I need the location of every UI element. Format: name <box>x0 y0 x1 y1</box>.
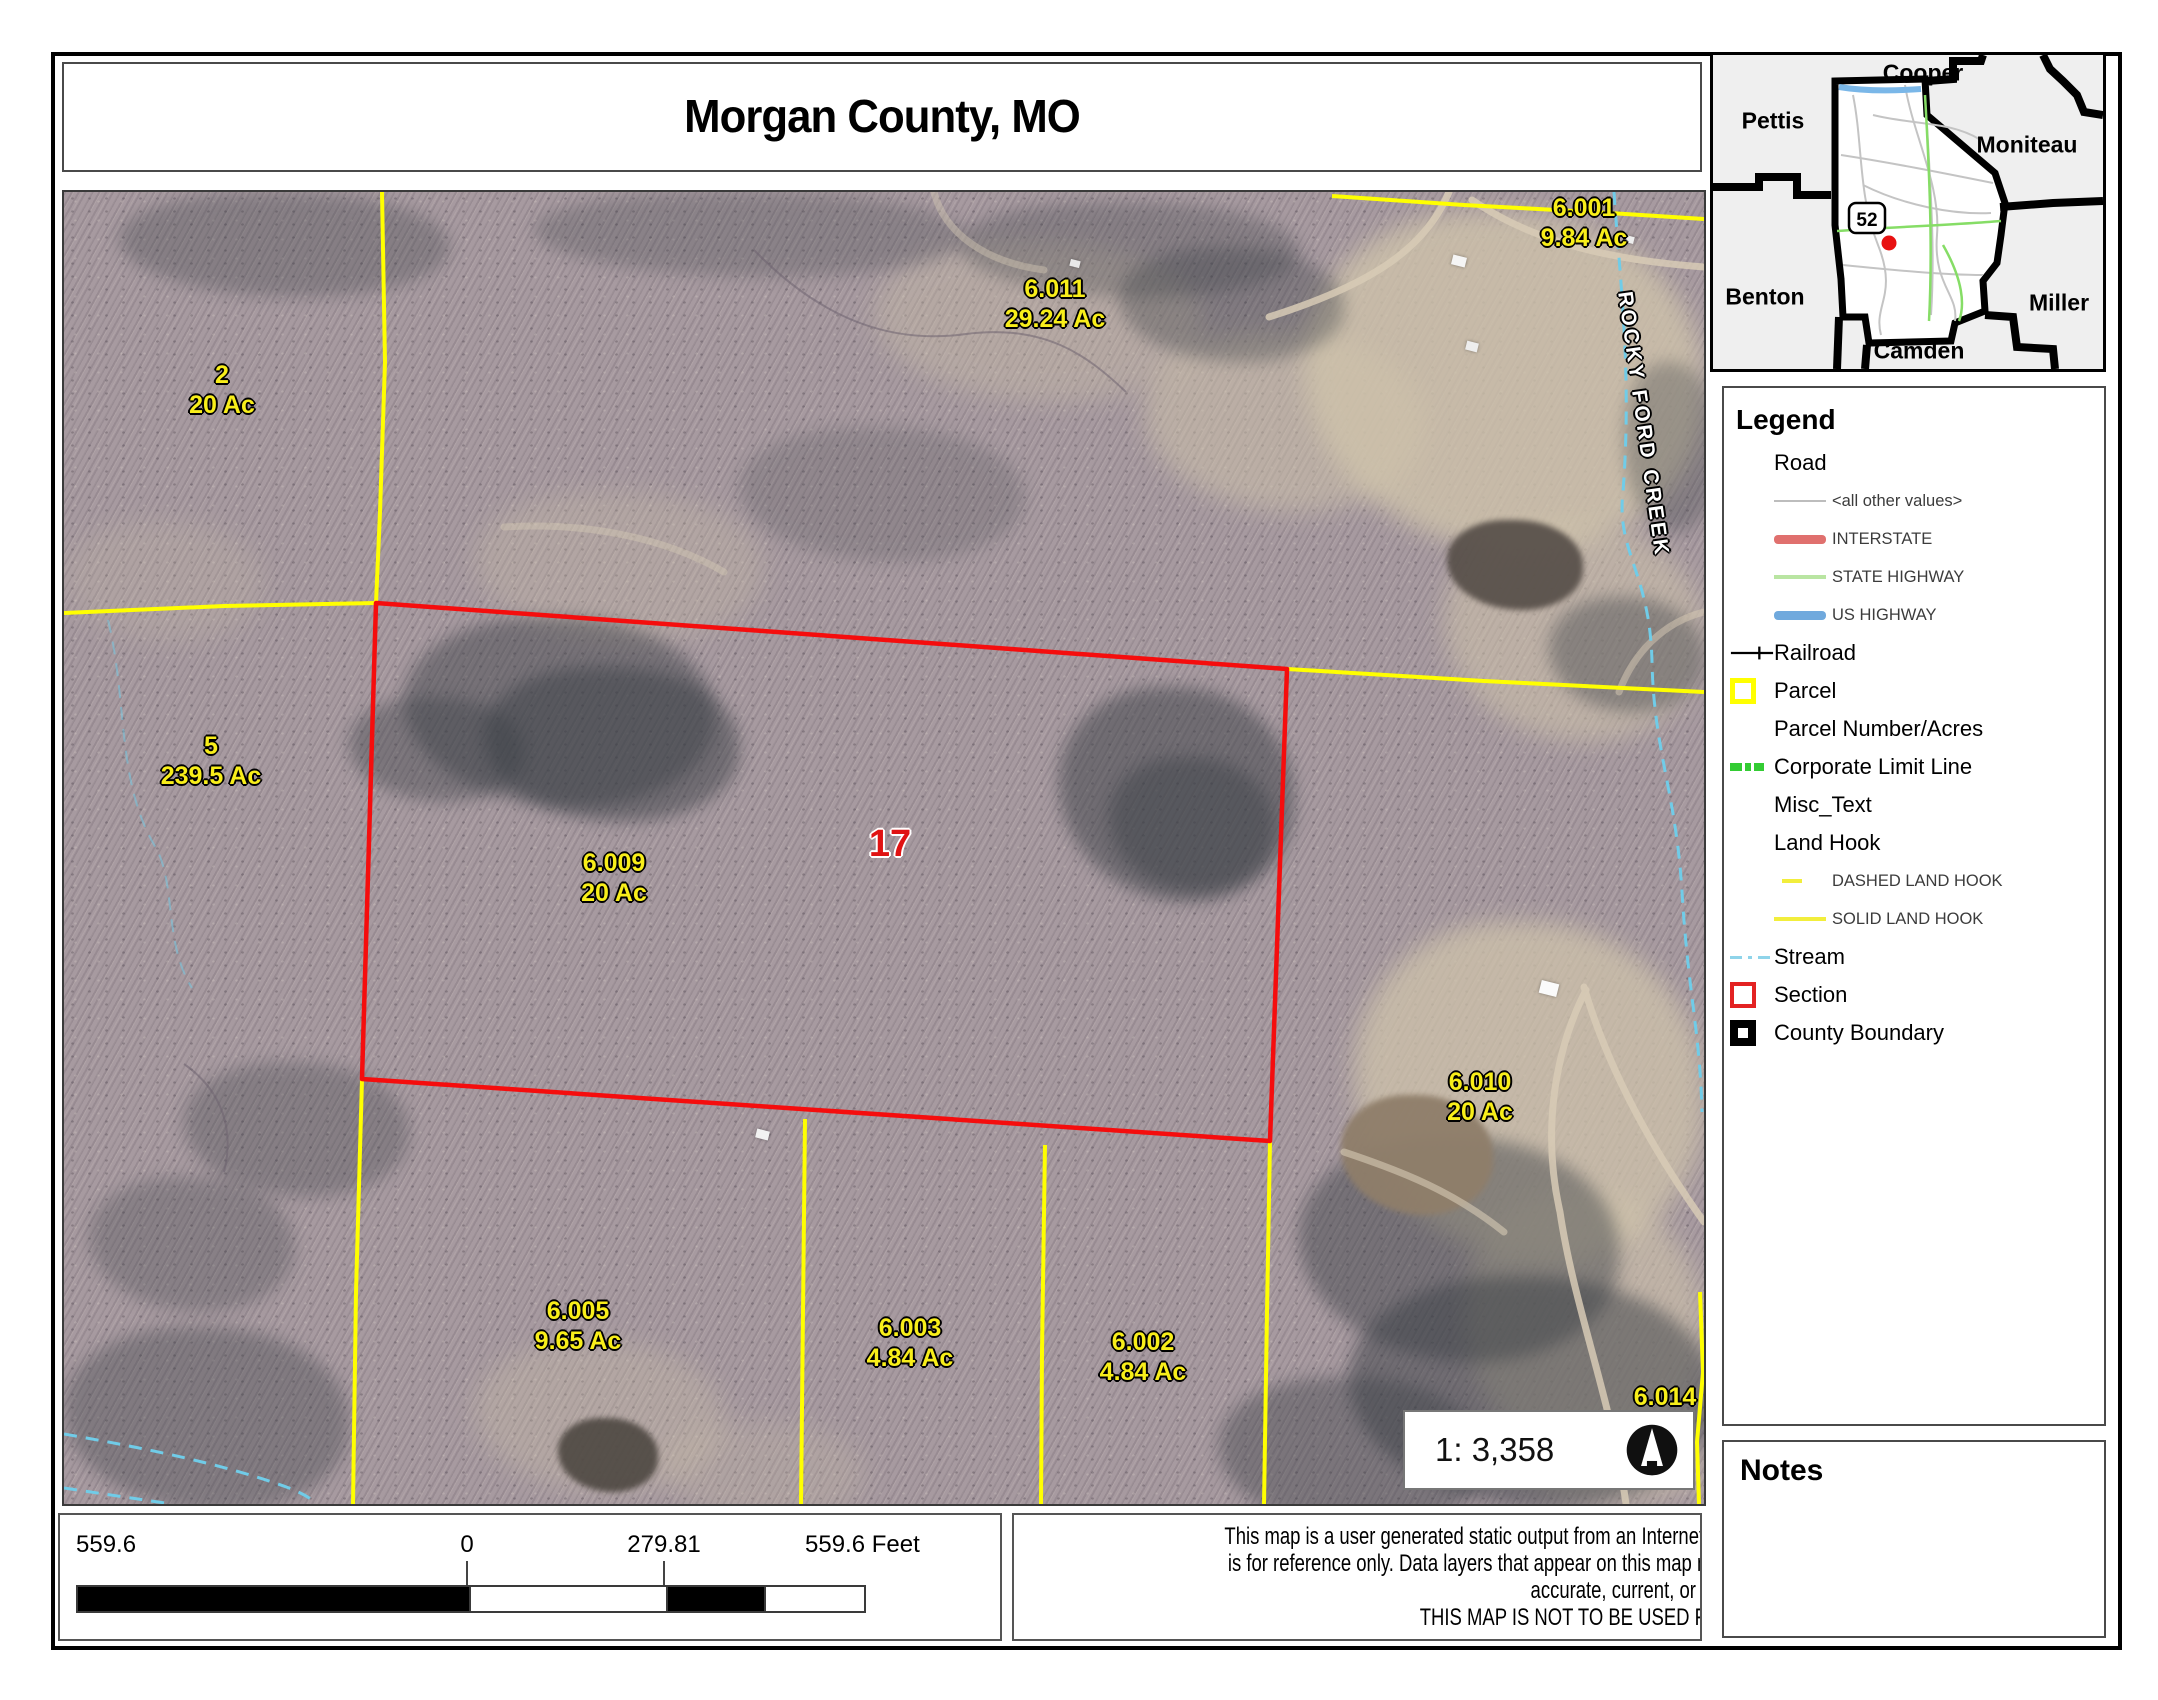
scalebar-box: 559.60279.81559.6 Feet <box>58 1513 1002 1641</box>
legend-line-symbol-icon <box>1774 611 1832 620</box>
parcel-label: 6.0024.84 Ac <box>1048 1327 1238 1387</box>
legend-item-label: Stream <box>1774 944 1845 970</box>
disclaimer-line: is for reference only. Data layers that … <box>1206 1550 1702 1577</box>
page-title: Morgan County, MO <box>105 64 1659 168</box>
legend-item-label: <all other values> <box>1832 492 1962 511</box>
legend-item-label: Land Hook <box>1774 830 1880 856</box>
parcel-label: 6.0059.65 Ac <box>483 1296 673 1356</box>
legend-item: SOLID LAND HOOK <box>1724 900 2104 938</box>
legend-item-label: DASHED LAND HOOK <box>1832 872 2003 891</box>
scalebar-segment <box>666 1587 764 1611</box>
legend-item: Road <box>1724 444 2104 482</box>
legend-item: US HIGHWAY <box>1724 596 2104 634</box>
scalebar-segment <box>469 1587 666 1611</box>
scalebar-tick <box>663 1561 665 1585</box>
inset-us-highway <box>1839 87 1921 90</box>
legend-item-label: SOLID LAND HOOK <box>1832 910 1983 929</box>
legend-item-label: County Boundary <box>1774 1020 1944 1046</box>
legend-item: Parcel <box>1724 672 2104 710</box>
inset-county-label: Miller <box>2029 290 2089 317</box>
disclaimer-line: accurate, current, or otherwise reliable… <box>1206 1577 1702 1604</box>
legend-line-symbol-icon <box>1774 575 1832 579</box>
legend-square-symbol-icon <box>1724 678 1774 704</box>
parcel-label: 6.01020 Ac <box>1385 1067 1575 1127</box>
legend-item-label: Section <box>1774 982 1847 1008</box>
legend-line-symbol-icon <box>1774 500 1832 502</box>
parcel-label: 6.014 <box>1570 1382 1706 1412</box>
legend-panel: Legend Road<all other values>INTERSTATES… <box>1722 386 2106 1426</box>
title-box: Morgan County, MO <box>62 62 1702 172</box>
drainage-lines <box>184 250 1126 1172</box>
inset-county-label: Moniteau <box>1977 132 2078 159</box>
legend-item: DASHED LAND HOOK <box>1724 862 2104 900</box>
scalebar-label: 279.81 <box>627 1531 700 1559</box>
legend-item-label: Misc_Text <box>1774 792 1872 818</box>
legend-item: County Boundary <box>1724 1014 2104 1052</box>
section-number-label: 17 <box>850 823 930 866</box>
disclaimer-text: This map is a user generated static outp… <box>1206 1523 1702 1631</box>
legend-line-symbol-icon <box>1774 535 1832 544</box>
parcel-label: 6.00920 Ac <box>519 848 709 908</box>
scalebar-label: 559.6 <box>76 1531 136 1559</box>
inset-county-label: Camden <box>1874 338 1965 365</box>
location-dot-icon <box>1882 236 1897 251</box>
legend-item: Stream <box>1724 938 2104 976</box>
county-locator-inset: 52 PettisCooperMoniteauBentonMillerCamde… <box>1710 52 2106 372</box>
legend-item: Parcel Number/Acres <box>1724 710 2104 748</box>
legend-item: INTERSTATE <box>1724 520 2104 558</box>
disclaimer-box: This map is a user generated static outp… <box>1012 1513 1702 1641</box>
legend-title: Legend <box>1724 388 2104 436</box>
parcel-label: 5239.5 Ac <box>116 731 306 791</box>
legend-item-label: STATE HIGHWAY <box>1832 568 1964 587</box>
notes-title: Notes <box>1724 1442 2104 1488</box>
legend-square-symbol-icon <box>1724 982 1774 1008</box>
map-canvas: 220 Ac6.01129.24 Ac6.0019.84 Ac5239.5 Ac… <box>62 190 1706 1506</box>
parcel-label: 220 Ac <box>127 360 317 420</box>
notes-panel: Notes <box>1722 1440 2106 1638</box>
parcel-label: 6.0034.84 Ac <box>815 1313 1005 1373</box>
legend-items: Road<all other values>INTERSTATESTATE HI… <box>1724 436 2104 1052</box>
scalebar-segment <box>78 1587 469 1611</box>
legend-item-label: Parcel Number/Acres <box>1774 716 1983 742</box>
inset-county-label: Cooper <box>1883 60 1964 87</box>
scalebar-segment <box>764 1587 864 1611</box>
disclaimer-line: THIS MAP IS NOT TO BE USED FOR NAVIGATIO… <box>1206 1604 1702 1631</box>
parcel-label: 6.0019.84 Ac <box>1489 193 1679 253</box>
legend-item: Land Hook <box>1724 824 2104 862</box>
legend-line-symbol-icon <box>1774 917 1832 921</box>
legend-item: Corporate Limit Line <box>1724 748 2104 786</box>
legend-item-label: Corporate Limit Line <box>1774 754 1972 780</box>
north-arrow-icon <box>1625 1423 1679 1477</box>
legend-item: Section <box>1724 976 2104 1014</box>
legend-railroad-symbol-icon <box>1724 643 1774 663</box>
legend-item-label: Railroad <box>1774 640 1856 666</box>
disclaimer-line: This map is a user generated static outp… <box>1206 1523 1702 1550</box>
inset-county-label: Pettis <box>1742 108 1805 135</box>
scalebar-tick <box>466 1561 468 1585</box>
legend-square-symbol-icon <box>1724 1020 1774 1046</box>
scale-ratio-text: 1: 3,358 <box>1435 1431 1554 1469</box>
section-outline <box>362 603 1287 1141</box>
legend-item: STATE HIGHWAY <box>1724 558 2104 596</box>
legend-dashblocks-symbol-icon <box>1724 763 1774 771</box>
legend-item-label: US HIGHWAY <box>1832 606 1937 625</box>
highway-shield-label: 52 <box>1856 210 1877 231</box>
scalebar-bar <box>76 1585 866 1613</box>
legend-item-label: Road <box>1774 450 1827 476</box>
scalebar-label: 0 <box>460 1531 473 1559</box>
parcel-label: 6.01129.24 Ac <box>960 274 1150 334</box>
legend-shortdash-symbol-icon <box>1774 879 1832 883</box>
inset-county-label: Benton <box>1725 284 1804 311</box>
legend-item-label: Parcel <box>1774 678 1836 704</box>
scale-info-box: 1: 3,358 <box>1403 1410 1695 1490</box>
scalebar-label: 559.6 Feet <box>805 1531 920 1559</box>
legend-dashline-symbol-icon <box>1724 956 1774 959</box>
legend-item: <all other values> <box>1724 482 2104 520</box>
county-locator-map: 52 <box>1713 55 2103 369</box>
legend-item: Misc_Text <box>1724 786 2104 824</box>
map-document-page: Morgan County, MO <box>0 0 2158 1700</box>
legend-item: Railroad <box>1724 634 2104 672</box>
legend-item-label: INTERSTATE <box>1832 530 1932 549</box>
